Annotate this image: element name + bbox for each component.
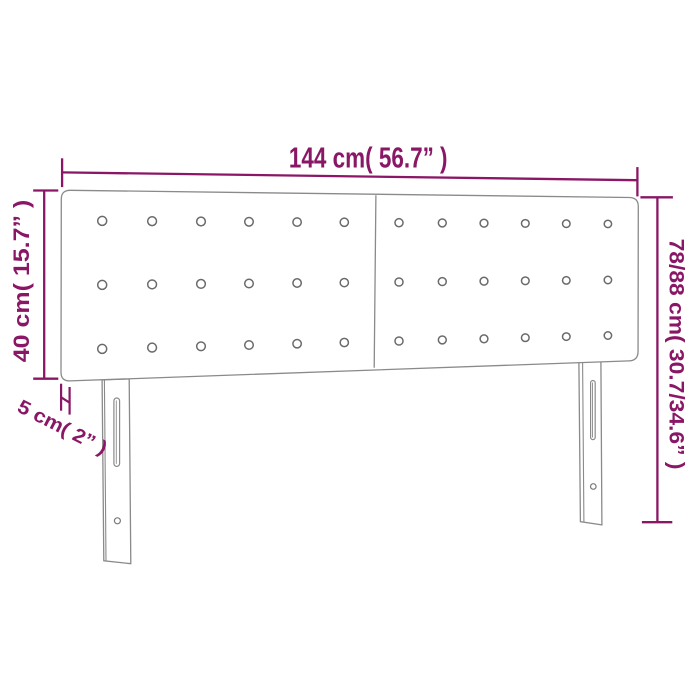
svg-text:78/88 cm( 30.7/34.6” ): 78/88 cm( 30.7/34.6” ) [665,239,689,470]
svg-text:5 cm( 2” ): 5 cm( 2” ) [14,396,111,460]
svg-text:40 cm( 15.7” ): 40 cm( 15.7” ) [9,200,33,362]
svg-text:144 cm( 56.7” ): 144 cm( 56.7” ) [289,143,448,174]
